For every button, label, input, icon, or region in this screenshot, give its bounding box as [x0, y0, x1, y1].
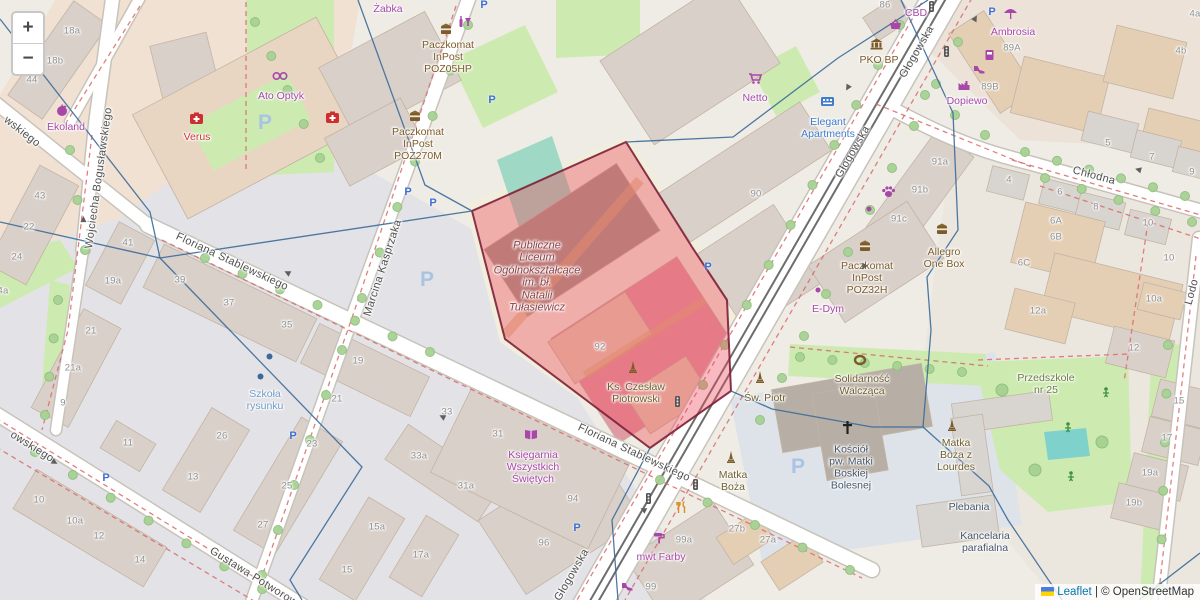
house-number: 19a: [1142, 469, 1158, 480]
parcel-locker-icon: [439, 22, 455, 38]
parking-icon: P: [404, 186, 411, 198]
house-number: 10: [1164, 254, 1175, 265]
poi-label: Ekoland: [47, 122, 85, 134]
house-number: 11: [123, 439, 133, 450]
street-label: Floriana Stablewskiego: [576, 421, 692, 484]
parking-icon: P: [102, 472, 109, 484]
house-number: 6B: [1050, 233, 1062, 244]
memorial-icon: [853, 354, 869, 370]
house-number: 8: [1093, 203, 1098, 214]
poi-label: Verus: [184, 132, 211, 144]
house-number: 5: [1105, 139, 1110, 150]
traffic-light-icon: [928, 0, 944, 16]
monument-icon: [946, 418, 962, 434]
street-label: Głogowska: [552, 547, 592, 600]
house-number: 18a: [64, 27, 80, 38]
bank-icon: [869, 37, 885, 53]
house-number: 6C: [1018, 259, 1031, 270]
house-number: 24: [12, 253, 23, 264]
oneway-arrow-icon: ▶: [638, 505, 648, 516]
house-number: 25: [282, 482, 293, 493]
house-number: 89B: [981, 83, 999, 94]
house-number: 10: [34, 496, 45, 507]
monument-icon: [627, 360, 643, 376]
monument-icon: [754, 370, 770, 386]
restaurant-icon: [675, 501, 691, 517]
greengrocer-icon: [55, 103, 71, 119]
parking-lot-icon: P: [791, 455, 805, 479]
street-label: wskiego: [1, 114, 42, 150]
poi-label: Matka Boża: [719, 470, 748, 494]
diy-icon: [652, 531, 668, 547]
house-number: 43: [35, 192, 46, 203]
house-number: 21: [86, 327, 97, 338]
house-number: 99a: [676, 536, 692, 547]
poi-label: Solidarność Walcząca: [835, 374, 890, 398]
house-number: 15: [1174, 397, 1185, 408]
house-number: 9: [1189, 168, 1194, 179]
poi-label: Ato Optyk: [258, 91, 304, 103]
street-label: Gustawa Potworowskiego: [207, 545, 328, 600]
supermarket-icon: [748, 72, 764, 88]
parking-icon: P: [289, 430, 296, 442]
house-number: 27: [258, 521, 269, 532]
poi-label: Szkoła rysunku: [247, 389, 284, 413]
house-number: 10a: [67, 517, 83, 528]
house-number: 96: [539, 539, 550, 550]
house-number: 21a: [65, 364, 81, 375]
street-label: Marcina Kasprzaka: [361, 218, 404, 318]
house-number: 33a: [411, 452, 427, 463]
poi-label: PKO BP: [859, 55, 898, 67]
oneway-arrow-icon: ▶: [79, 216, 88, 222]
poi-label: Dopiewo: [947, 96, 988, 108]
house-number: 12: [1129, 344, 1140, 355]
labels-layer: Wojciecha BogusławskiegoFloriana Stablew…: [0, 0, 1200, 600]
bar-icon: [457, 15, 473, 31]
parcel-locker-icon: [858, 239, 874, 255]
parking-icon: P: [429, 197, 436, 209]
parcel-locker-icon: [408, 109, 424, 125]
house-number: 41: [123, 239, 134, 250]
house-number: 89A: [1003, 44, 1021, 55]
house-number: 39: [175, 276, 186, 287]
house-number: 22: [24, 223, 35, 234]
street-label: Chłodna: [1071, 164, 1117, 187]
house-number: 14: [135, 556, 146, 567]
house-number: 35: [282, 321, 293, 332]
house-number: 44: [27, 76, 38, 87]
medical-icon: [325, 110, 341, 126]
parking-lot-icon: P: [258, 111, 272, 135]
house-number: 23: [307, 440, 318, 451]
street-label: Floriana Stablewskiego: [174, 230, 290, 293]
oneway-arrow-icon: ▶: [282, 268, 292, 279]
house-number: 10a: [1146, 295, 1162, 306]
house-number: 6A: [1050, 217, 1062, 228]
house-number: 10: [1143, 219, 1154, 230]
playground-icon: [1100, 386, 1116, 402]
glasses-icon: [272, 71, 288, 87]
house-number: 21: [332, 395, 343, 406]
poi-label: Kancelaria parafialna: [960, 531, 1010, 555]
zoom-control[interactable]: + −: [11, 11, 45, 76]
house-number: 26: [217, 432, 228, 443]
paw-icon: [881, 185, 897, 201]
traffic-light-icon: [674, 395, 690, 411]
highlight-area-label: Publiczne Liceum Ogólnokształcące im. bł…: [494, 240, 581, 315]
parking-icon: P: [573, 522, 580, 534]
traffic-light-icon: [645, 492, 661, 508]
poi-label: Allegro One Box: [924, 247, 965, 271]
poi-label: Paczkomat InPost POZ05HP: [422, 40, 474, 76]
house-number: 31: [493, 430, 504, 441]
poi-label: Księgarnia Wszystkich Świętych: [507, 450, 560, 486]
zoom-out-button[interactable]: −: [13, 44, 43, 74]
dot-icon: [815, 287, 831, 303]
poi-label: CBD: [905, 8, 927, 20]
shoe-icon: [972, 65, 988, 81]
dot-icon: [866, 206, 882, 222]
house-number: 17a: [413, 551, 429, 562]
factory-icon: [957, 79, 973, 95]
poi-label: Ks. Czesław Piotrowski: [607, 382, 665, 406]
playground-icon: [1065, 470, 1081, 486]
house-number: 12a: [1030, 307, 1046, 318]
poi-label: Plebania: [949, 502, 990, 514]
house-number: 99: [646, 583, 657, 594]
map-canvas[interactable]: Wojciecha BogusławskiegoFloriana Stablew…: [0, 0, 1200, 600]
oneway-arrow-icon: ▶: [437, 412, 447, 423]
house-number: 31a: [458, 482, 474, 493]
poi-label: E-Dym: [812, 304, 844, 316]
poi-label: Netto: [742, 93, 767, 105]
house-number: 90: [751, 190, 762, 201]
attribution-separator: |: [1092, 586, 1101, 598]
parking-icon: P: [988, 6, 995, 18]
monument-icon: [725, 450, 741, 466]
ukraine-flag-icon: [1041, 587, 1054, 596]
poi-label: Kościół pw. Matki Boskiej Bolesnej: [829, 444, 873, 491]
book-icon: [523, 429, 539, 445]
osm-copyright: © OpenStreetMap: [1101, 586, 1194, 598]
house-number: 27b: [729, 525, 745, 536]
poi-label: Elegant Apartments: [801, 117, 855, 141]
house-number: 91b: [912, 186, 928, 197]
house-number: 7: [1149, 153, 1154, 164]
street-label: owskiego: [8, 429, 56, 466]
shoe-icon: [620, 582, 636, 598]
house-number: 27a: [760, 536, 776, 547]
apartment-icon: [820, 95, 836, 111]
house-number: 6: [1057, 188, 1062, 199]
house-number: 4a: [0, 287, 8, 298]
poi-label: Przedszkole nr 25: [1017, 373, 1074, 397]
house-number: 9: [60, 399, 65, 410]
house-number: 19a: [105, 277, 121, 288]
atm-icon: [984, 49, 1000, 65]
oneway-arrow-icon: ▶: [970, 13, 981, 23]
parking-lot-icon: P: [420, 268, 434, 292]
street-label: Wojciecha Bogusławskiego: [83, 106, 115, 249]
house-number: 15: [342, 566, 353, 577]
attribution: Leaflet | © OpenStreetMap: [1035, 584, 1200, 600]
house-number: 19b: [1126, 499, 1142, 510]
oneway-arrow-icon: ▶: [1134, 165, 1142, 175]
leaflet-link[interactable]: Leaflet: [1057, 586, 1092, 598]
poi-label: Paczkomat InPost POZ270M: [392, 127, 444, 163]
house-number: 13: [188, 473, 199, 484]
house-number: 91a: [932, 158, 948, 169]
basket-icon: [889, 19, 905, 35]
poi-label: Św. Piotr: [744, 393, 785, 405]
house-number: 94: [568, 495, 579, 506]
poi-label: Żabka: [373, 4, 402, 16]
parcel-locker-icon: [935, 222, 951, 238]
zoom-in-button[interactable]: +: [13, 13, 43, 44]
house-number: 4b: [1176, 47, 1187, 58]
house-number: 92: [595, 343, 606, 354]
house-number: 86: [880, 1, 891, 12]
parking-icon: P: [480, 0, 487, 11]
traffic-light-icon: [692, 478, 708, 494]
pharmacy-icon: [189, 111, 205, 127]
house-number: 91c: [891, 215, 907, 226]
parking-icon: P: [704, 261, 711, 273]
street-label: Lodo: [1183, 278, 1200, 306]
house-number: 4a: [1190, 10, 1200, 21]
cross-icon: [841, 420, 857, 436]
house-number: 4: [1006, 176, 1011, 187]
house-number: 17: [1162, 434, 1173, 445]
traffic-light-icon: [943, 45, 959, 61]
oneway-arrow-icon: ▶: [843, 83, 854, 93]
dot-blue-icon: [266, 353, 282, 369]
house-number: 12: [94, 532, 105, 543]
cafe-icon: [1003, 7, 1019, 23]
house-number: 15a: [369, 523, 385, 534]
parking-icon: P: [488, 94, 495, 106]
poi-label: Matka Boża z Lourdes: [937, 438, 975, 474]
dot-blue-icon: [257, 373, 273, 389]
house-number: 18b: [47, 57, 63, 68]
playground-icon: [1062, 421, 1078, 437]
house-number: 19: [353, 357, 364, 368]
poi-label: mwt Farby: [636, 552, 685, 564]
poi-label: Ambrosia: [991, 27, 1035, 39]
house-number: 37: [224, 299, 235, 310]
